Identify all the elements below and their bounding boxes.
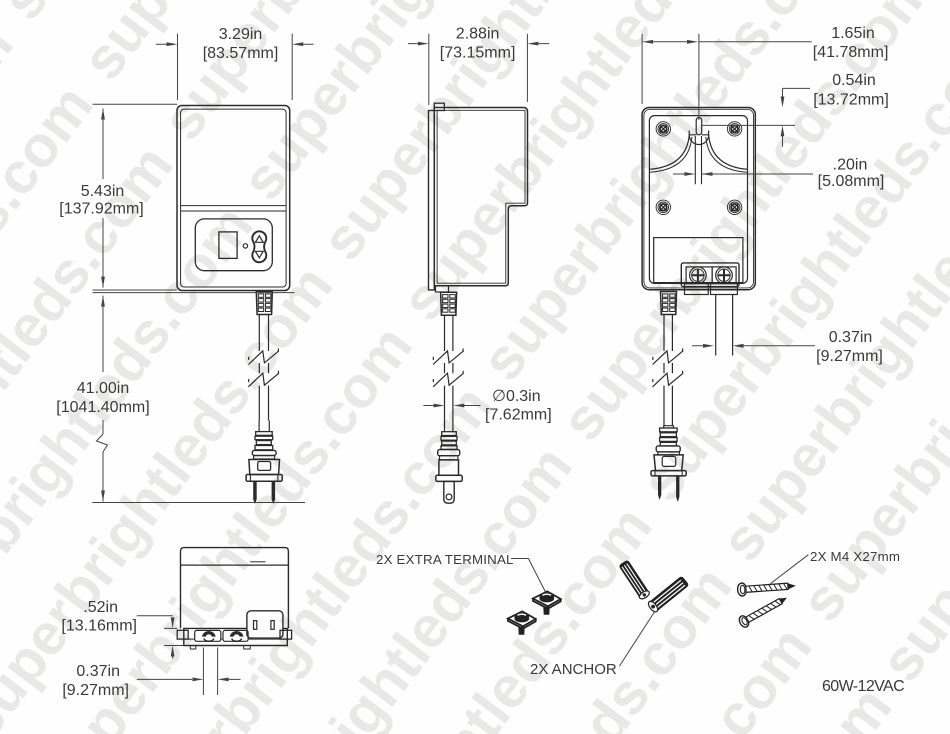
svg-text:2X M4 X27mm: 2X M4 X27mm	[810, 549, 900, 564]
svg-text:[5.08mm]: [5.08mm]	[818, 173, 885, 190]
svg-text:[83.57mm]: [83.57mm]	[203, 45, 279, 62]
svg-text:2.88in: 2.88in	[456, 26, 500, 43]
svg-text:60W-12VAC: 60W-12VAC	[822, 678, 904, 695]
svg-text:.20in: .20in	[833, 157, 868, 174]
svg-text:0.37in: 0.37in	[829, 329, 873, 346]
svg-text:5.43in: 5.43in	[81, 183, 125, 200]
svg-text:0.54in: 0.54in	[832, 72, 876, 89]
svg-text:[137.92mm]: [137.92mm]	[59, 201, 143, 218]
svg-text:[13.16mm]: [13.16mm]	[61, 618, 137, 635]
svg-text:2X EXTRA TERMINAL: 2X EXTRA TERMINAL	[376, 552, 514, 567]
svg-text:0.37in: 0.37in	[76, 663, 120, 680]
svg-text:[9.27mm]: [9.27mm]	[816, 348, 883, 365]
svg-text:[13.72mm]: [13.72mm]	[813, 92, 889, 109]
svg-text:2X ANCHOR: 2X ANCHOR	[530, 661, 617, 678]
svg-text:3.29in: 3.29in	[219, 26, 263, 43]
svg-text:[1041.40mm]: [1041.40mm]	[56, 399, 149, 416]
svg-text:41.00in: 41.00in	[77, 380, 130, 397]
svg-text:[73.15mm]: [73.15mm]	[440, 45, 516, 62]
svg-text:1.65in: 1.65in	[831, 25, 875, 42]
svg-text:[7.62mm]: [7.62mm]	[485, 407, 552, 424]
svg-text:[9.27mm]: [9.27mm]	[62, 682, 129, 699]
svg-text:[41.78mm]: [41.78mm]	[813, 44, 889, 61]
svg-text:.52in: .52in	[83, 599, 118, 616]
svg-text:∅0.3in: ∅0.3in	[492, 388, 541, 405]
